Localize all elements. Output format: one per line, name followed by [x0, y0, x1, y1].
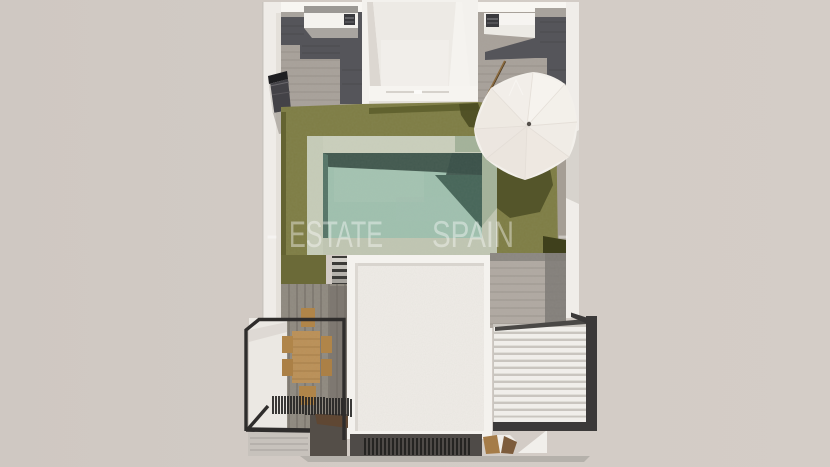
- svg-text:SPAIN: SPAIN: [432, 214, 514, 255]
- svg-text:-: -: [557, 214, 569, 255]
- svg-text:ESTATE: ESTATE: [289, 214, 383, 255]
- svg-text:-: -: [266, 214, 278, 255]
